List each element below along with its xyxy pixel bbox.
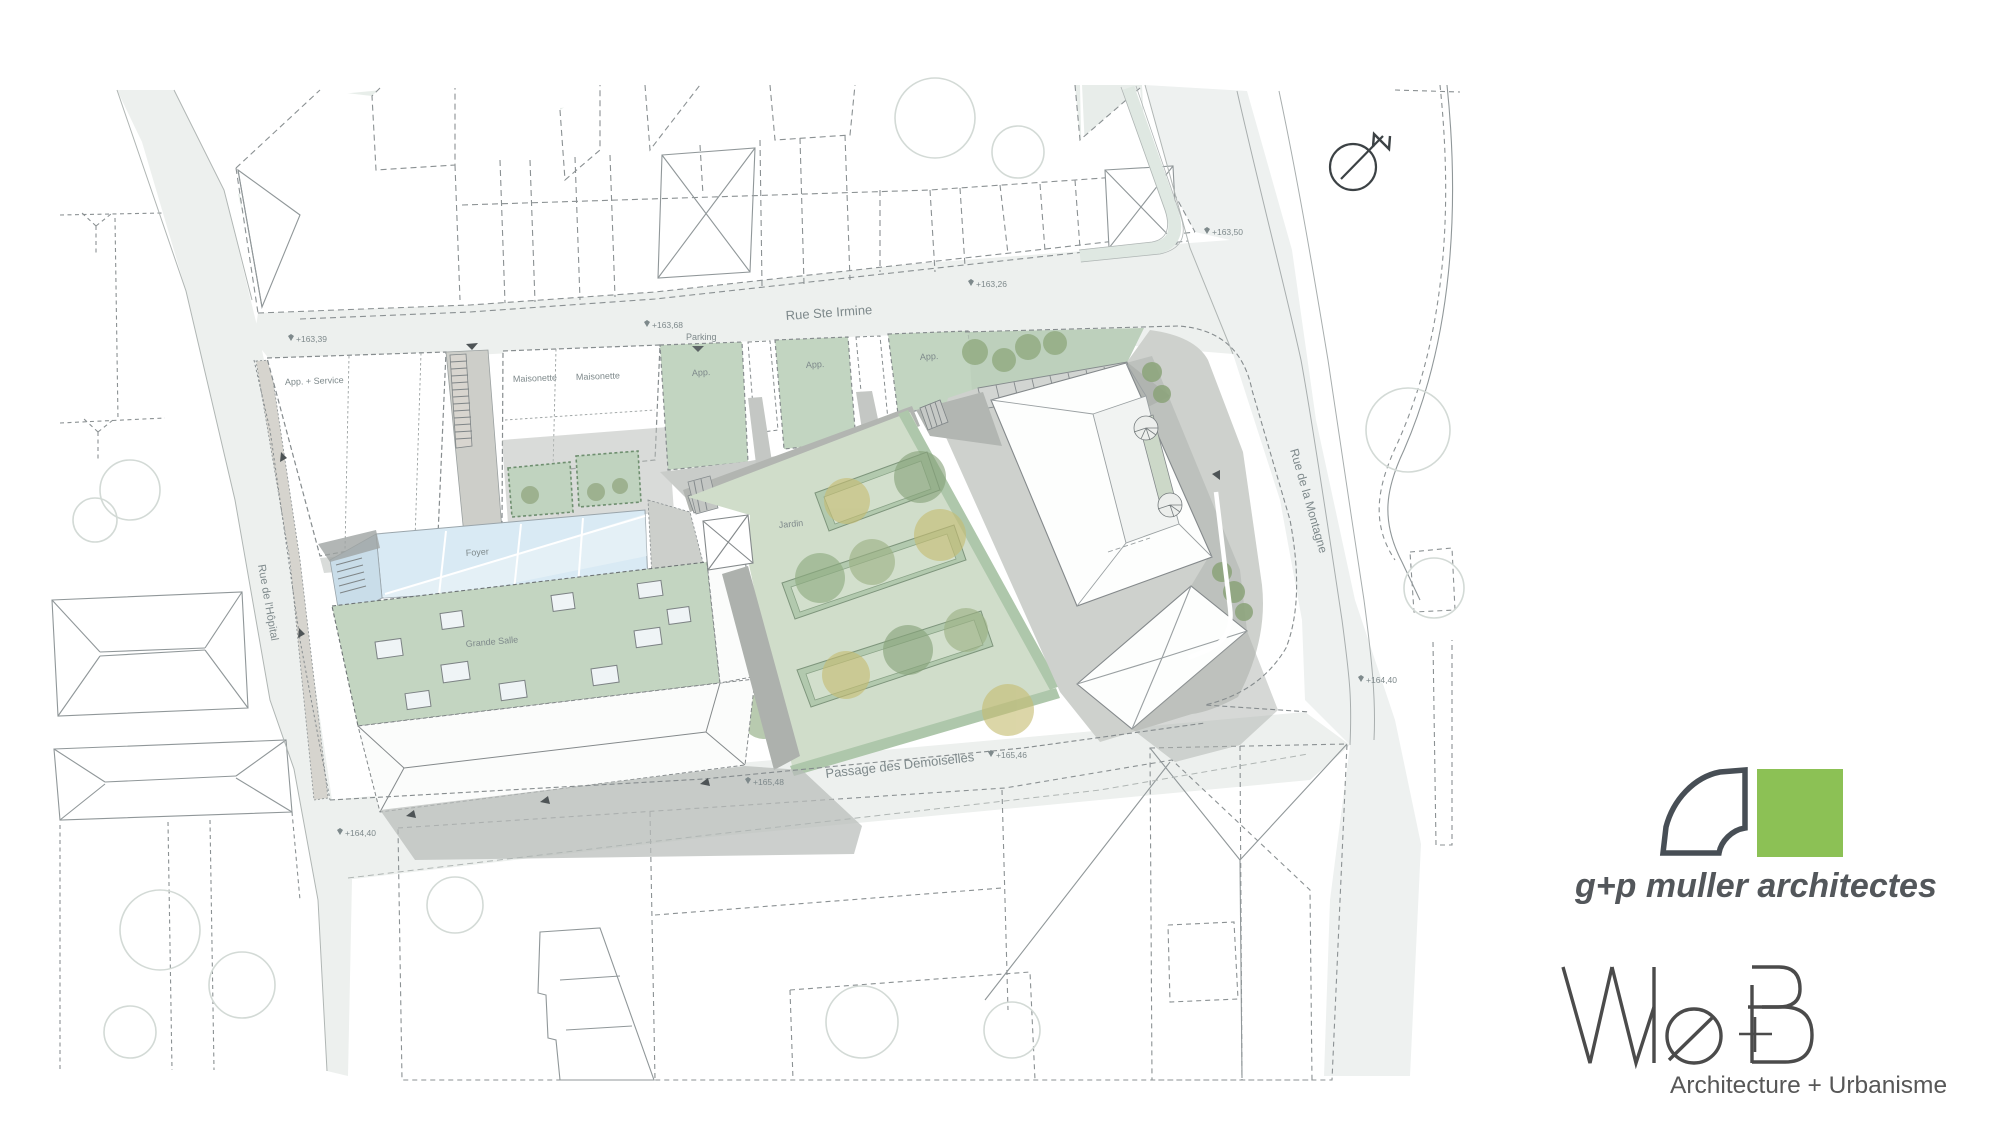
svg-text:Maisonette: Maisonette [576, 370, 620, 382]
svg-text:+163,68: +163,68 [652, 320, 683, 330]
svg-text:+164,40: +164,40 [1366, 675, 1397, 685]
svg-text:g+p muller architectes: g+p muller architectes [1574, 867, 1937, 905]
svg-text:App.: App. [806, 359, 825, 370]
svg-text:+164,40: +164,40 [345, 828, 376, 838]
svg-text:+163,50: +163,50 [1212, 227, 1243, 237]
svg-text:App.: App. [692, 367, 711, 378]
svg-text:Maisonette: Maisonette [513, 372, 557, 384]
svg-text:App. + Service: App. + Service [285, 375, 344, 387]
svg-text:Foyer: Foyer [465, 546, 489, 558]
svg-text:+165,48: +165,48 [753, 777, 784, 787]
svg-text:Parking: Parking [686, 332, 717, 342]
svg-text:App.: App. [920, 351, 939, 362]
svg-text:+163,39: +163,39 [296, 334, 327, 344]
svg-text:+163,26: +163,26 [976, 279, 1007, 289]
svg-text:Architecture + Urbanisme: Architecture + Urbanisme [1670, 1072, 1947, 1099]
svg-text:+165,46: +165,46 [996, 750, 1027, 760]
svg-text:Jardin: Jardin [778, 518, 803, 530]
